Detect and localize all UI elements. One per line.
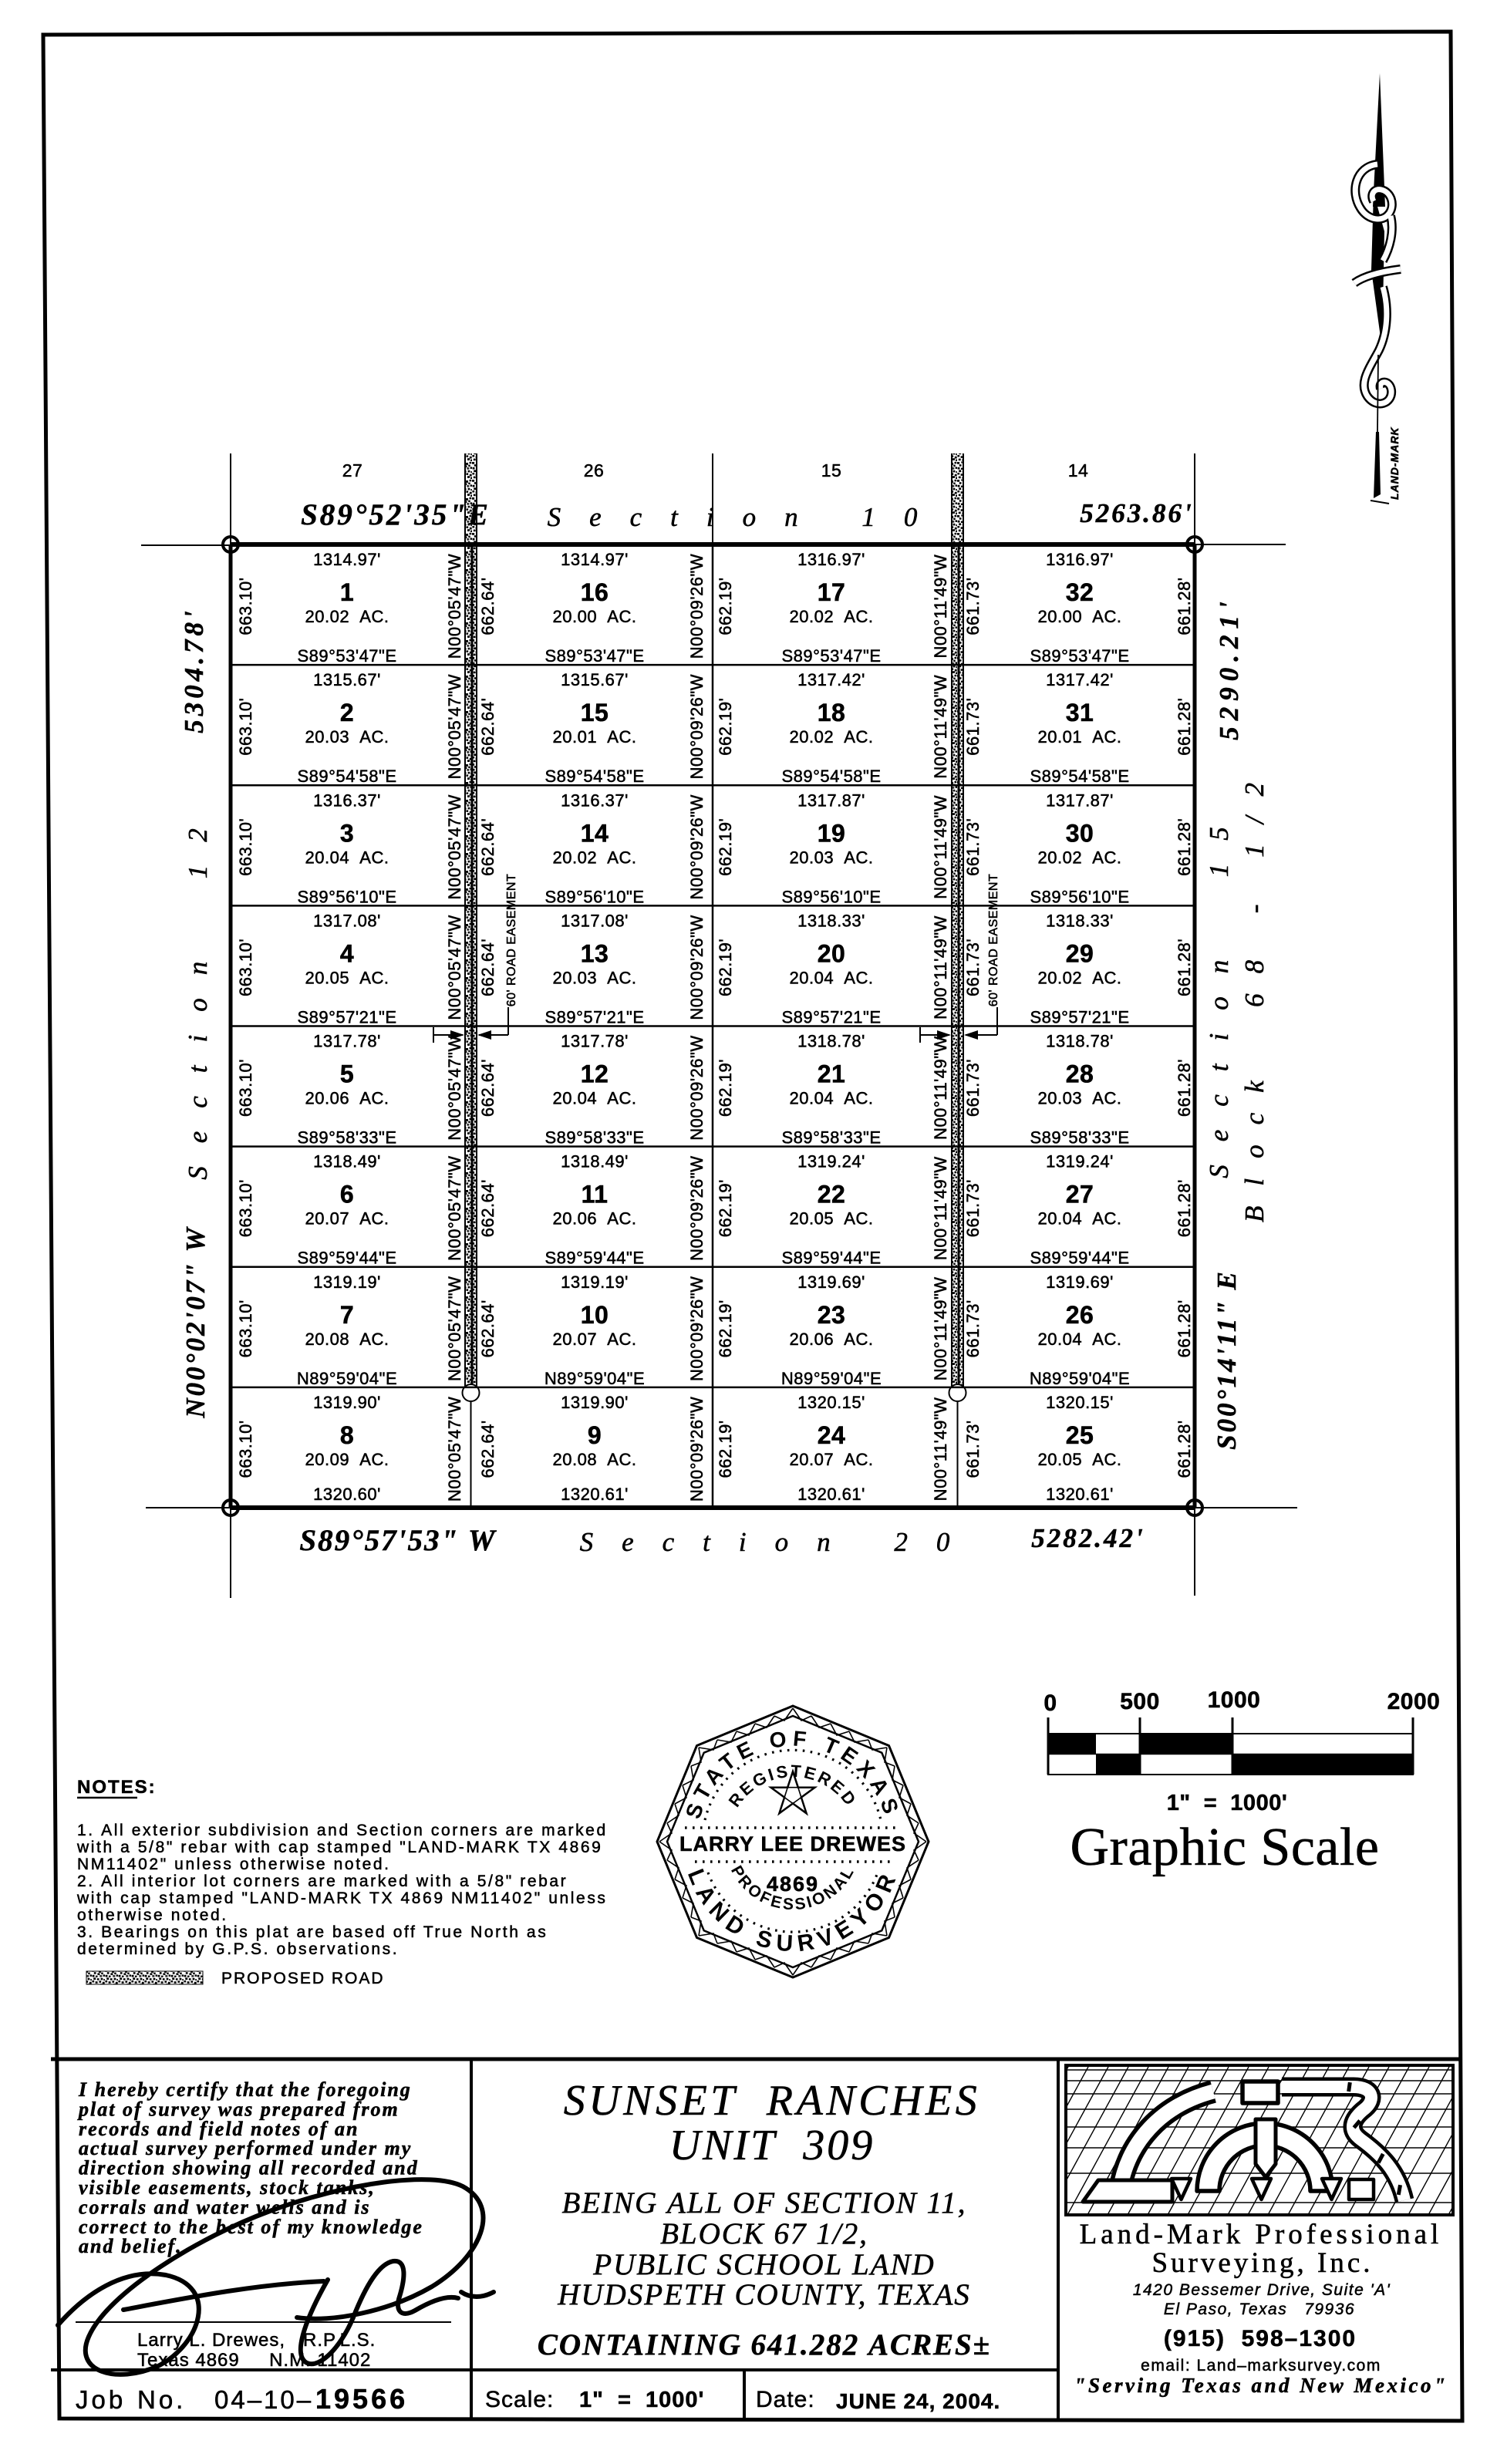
svg-text:9: 9 — [588, 1421, 602, 1449]
svg-text:1000: 1000 — [1208, 1687, 1261, 1713]
svg-text:N00°11'49"W: N00°11'49"W — [931, 1276, 950, 1380]
svg-text:26: 26 — [1066, 1301, 1094, 1329]
svg-text:661.73': 661.73' — [963, 698, 983, 756]
svg-text:19566: 19566 — [315, 2383, 408, 2415]
svg-text:20.02 AC.: 20.02 AC. — [553, 848, 637, 867]
svg-text:32: 32 — [1066, 578, 1094, 606]
svg-text:20.03 AC.: 20.03 AC. — [1038, 1089, 1122, 1108]
svg-text:20.02 AC.: 20.02 AC. — [1038, 848, 1122, 867]
svg-text:661.28': 661.28' — [1175, 1299, 1194, 1357]
svg-text:SUNSET RANCHES: SUNSET RANCHES — [564, 2077, 980, 2125]
svg-text:1320.61': 1320.61' — [1046, 1485, 1114, 1504]
svg-text:N00°11'49"W: N00°11'49"W — [931, 675, 950, 779]
svg-text:S89°57'21"E: S89°57'21"E — [1030, 1007, 1129, 1026]
svg-text:N00°05'47"W: N00°05'47"W — [445, 1035, 464, 1140]
svg-text:2: 2 — [340, 699, 354, 726]
svg-text:20.00 AC.: 20.00 AC. — [1038, 607, 1122, 626]
svg-text:662.64': 662.64' — [478, 1179, 497, 1237]
svg-text:15: 15 — [581, 699, 609, 726]
svg-text:1320.15': 1320.15' — [1046, 1393, 1114, 1412]
svg-text:663.10': 663.10' — [236, 1299, 255, 1357]
svg-text:20.01 AC.: 20.01 AC. — [553, 727, 637, 747]
svg-text:661.73': 661.73' — [963, 578, 983, 635]
svg-text:20: 20 — [818, 939, 846, 967]
svg-text:20.05 AC.: 20.05 AC. — [790, 1209, 874, 1229]
svg-text:1319.90': 1319.90' — [561, 1393, 629, 1412]
svg-text:S89°56'10"E: S89°56'10"E — [781, 887, 881, 906]
svg-text:662.64': 662.64' — [478, 1420, 497, 1478]
svg-text:NOTES:: NOTES: — [77, 1777, 157, 1798]
svg-text:662.19': 662.19' — [716, 1059, 735, 1117]
svg-text:S89°58'33"E: S89°58'33"E — [545, 1128, 644, 1148]
svg-text:662.19': 662.19' — [716, 698, 735, 756]
svg-text:Job: Job — [76, 2385, 126, 2414]
svg-text:20.00 AC.: 20.00 AC. — [553, 607, 637, 626]
svg-text:S89°57'21"E: S89°57'21"E — [545, 1007, 644, 1026]
svg-text:1319.69': 1319.69' — [797, 1272, 865, 1292]
svg-text:20.06 AC.: 20.06 AC. — [790, 1330, 874, 1349]
svg-text:1317.78': 1317.78' — [313, 1032, 381, 1051]
svg-text:663.10': 663.10' — [236, 1420, 255, 1478]
svg-text:with cap stamped "LAND-MARK TX: with cap stamped "LAND-MARK TX 4869 NM11… — [76, 1889, 608, 1907]
svg-text:determined by G.P.S. observati: determined by G.P.S. observations. — [77, 1940, 399, 1958]
svg-text:22: 22 — [818, 1181, 846, 1208]
svg-text:662.64': 662.64' — [478, 818, 497, 876]
svg-text:1" = 1000': 1" = 1000' — [579, 2388, 704, 2412]
svg-text:Section 15: Section 15 — [1204, 804, 1234, 1178]
svg-text:HUDSPETH COUNTY, TEXAS: HUDSPETH COUNTY, TEXAS — [557, 2278, 971, 2311]
svg-text:1318.78': 1318.78' — [797, 1032, 865, 1051]
svg-text:S89°53'47"E: S89°53'47"E — [781, 646, 881, 666]
svg-text:20.03 AC.: 20.03 AC. — [553, 968, 637, 987]
svg-text:N00°05'47"W: N00°05'47"W — [445, 674, 464, 779]
svg-text:S89°59'44"E: S89°59'44"E — [545, 1249, 644, 1268]
svg-text:1319.90': 1319.90' — [313, 1393, 381, 1412]
svg-text:Section 12: Section 12 — [183, 805, 213, 1180]
svg-text:1317.08': 1317.08' — [561, 911, 629, 930]
svg-text:661.73': 661.73' — [963, 1059, 983, 1117]
svg-text:12: 12 — [581, 1060, 609, 1088]
svg-text:1317.42': 1317.42' — [1046, 670, 1114, 689]
svg-text:20.04 AC.: 20.04 AC. — [305, 848, 389, 867]
svg-text:17: 17 — [818, 578, 846, 606]
svg-text:Graphic Scale: Graphic Scale — [1070, 1818, 1379, 1877]
svg-text:500: 500 — [1120, 1689, 1160, 1714]
svg-text:N00°09'26"W: N00°09'26"W — [687, 915, 706, 1020]
svg-text:661.28': 661.28' — [1175, 698, 1194, 756]
svg-text:Texas 4869 N.M. 11402: Texas 4869 N.M. 11402 — [137, 2350, 371, 2371]
svg-text:4869: 4869 — [767, 1872, 819, 1896]
svg-text:8: 8 — [340, 1421, 354, 1449]
svg-text:N00°09'26"W: N00°09'26"W — [687, 1397, 706, 1502]
svg-text:661.28': 661.28' — [1175, 1179, 1194, 1237]
svg-text:663.10': 663.10' — [236, 1059, 255, 1117]
svg-text:1319.19': 1319.19' — [313, 1272, 381, 1292]
svg-text:S89°53'47"E: S89°53'47"E — [297, 646, 396, 666]
svg-text:20.05 AC.: 20.05 AC. — [305, 968, 389, 987]
svg-text:Section 20: Section 20 — [580, 1527, 979, 1557]
svg-text:Section 10: Section 10 — [548, 502, 946, 532]
svg-text:663.10': 663.10' — [236, 818, 255, 876]
svg-text:S00°14'11" E: S00°14'11" E — [1212, 1269, 1242, 1450]
svg-text:BEING ALL OF SECTION 11,: BEING ALL OF SECTION 11, — [561, 2186, 966, 2220]
svg-text:1314.97': 1314.97' — [561, 550, 629, 569]
svg-text:661.28': 661.28' — [1175, 1420, 1194, 1478]
svg-text:JUNE 24, 2004.: JUNE 24, 2004. — [836, 2389, 1000, 2413]
svg-text:10: 10 — [581, 1301, 609, 1329]
svg-text:UNIT 309: UNIT 309 — [669, 2122, 875, 2169]
svg-text:N00°05'47"W: N00°05'47"W — [445, 554, 464, 659]
svg-text:CONTAINING 641.282 ACRES±: CONTAINING 641.282 ACRES± — [538, 2328, 991, 2361]
svg-text:14: 14 — [1068, 460, 1089, 480]
svg-text:1316.37': 1316.37' — [313, 790, 381, 810]
svg-text:BLOCK 67 1/2,: BLOCK 67 1/2, — [660, 2217, 868, 2250]
svg-text:20.02 AC.: 20.02 AC. — [1038, 968, 1122, 987]
svg-text:Surveying, Inc.: Surveying, Inc. — [1151, 2247, 1373, 2279]
svg-text:662.19': 662.19' — [716, 939, 735, 996]
svg-text:1315.67': 1315.67' — [561, 670, 629, 689]
svg-text:26: 26 — [584, 460, 605, 480]
svg-text:28: 28 — [1066, 1060, 1094, 1088]
svg-text:1316.97': 1316.97' — [797, 550, 865, 569]
svg-text:5290.21': 5290.21' — [1214, 595, 1244, 740]
svg-text:24: 24 — [818, 1421, 846, 1449]
svg-text:1318.49': 1318.49' — [313, 1152, 381, 1171]
svg-text:1317.42': 1317.42' — [797, 670, 865, 689]
svg-text:N00°09'26"W: N00°09'26"W — [687, 1156, 706, 1261]
svg-text:1318.33': 1318.33' — [797, 911, 865, 930]
svg-text:20.08 AC.: 20.08 AC. — [553, 1450, 637, 1469]
svg-text:04–10–: 04–10– — [214, 2385, 313, 2414]
svg-text:20.04 AC.: 20.04 AC. — [553, 1089, 637, 1108]
svg-text:S89°56'10"E: S89°56'10"E — [297, 887, 396, 906]
svg-text:No.: No. — [137, 2385, 186, 2414]
svg-text:5304.78': 5304.78' — [179, 607, 209, 733]
svg-text:S89°54'58"E: S89°54'58"E — [297, 767, 396, 786]
svg-text:N00°09'26"W: N00°09'26"W — [687, 794, 706, 899]
svg-text:20.03 AC.: 20.03 AC. — [305, 727, 389, 747]
svg-text:31: 31 — [1066, 699, 1094, 726]
svg-text:N00°05'47"W: N00°05'47"W — [445, 1276, 464, 1381]
svg-text:email: Land–marksurvey.com: email: Land–marksurvey.com — [1141, 2357, 1381, 2375]
svg-text:N00°11'49"W: N00°11'49"W — [931, 1036, 950, 1140]
svg-text:7: 7 — [340, 1301, 354, 1329]
svg-text:N00°09'26"W: N00°09'26"W — [687, 674, 706, 779]
svg-text:20.04 AC.: 20.04 AC. — [790, 1089, 874, 1108]
svg-text:662.64': 662.64' — [478, 698, 497, 756]
svg-text:NM11402" unless otherwise note: NM11402" unless otherwise noted. — [77, 1856, 391, 1873]
svg-text:662.19': 662.19' — [716, 1299, 735, 1357]
svg-text:1320.15': 1320.15' — [797, 1393, 865, 1412]
svg-text:N00°11'49"W: N00°11'49"W — [931, 1156, 950, 1260]
svg-text:662.19': 662.19' — [716, 1420, 735, 1478]
svg-text:S89°53'47"E: S89°53'47"E — [545, 646, 644, 666]
svg-text:19: 19 — [818, 819, 846, 847]
svg-text:4: 4 — [340, 939, 354, 967]
svg-text:5: 5 — [340, 1060, 354, 1088]
svg-text:S89°59'44"E: S89°59'44"E — [781, 1249, 881, 1268]
svg-text:N89°59'04"E: N89°59'04"E — [781, 1369, 882, 1388]
svg-text:663.10': 663.10' — [236, 1179, 255, 1237]
svg-text:N89°59'04"E: N89°59'04"E — [545, 1369, 645, 1388]
svg-text:S89°54'58"E: S89°54'58"E — [781, 767, 881, 786]
svg-text:S89°57'21"E: S89°57'21"E — [297, 1007, 396, 1026]
svg-text:6: 6 — [340, 1181, 354, 1208]
svg-text:662.64': 662.64' — [478, 1299, 497, 1357]
svg-text:"Serving Texas and New Mexico": "Serving Texas and New Mexico" — [1074, 2374, 1448, 2397]
svg-text:1319.19': 1319.19' — [561, 1272, 629, 1292]
svg-text:661.73': 661.73' — [963, 1420, 983, 1478]
svg-text:PROPOSED ROAD: PROPOSED ROAD — [221, 1970, 385, 1987]
svg-text:N00°11'49"W: N00°11'49"W — [931, 554, 950, 659]
svg-text:N00°11'49"W: N00°11'49"W — [931, 915, 950, 1020]
svg-text:30: 30 — [1066, 819, 1094, 847]
svg-text:N00°11'49"W: N00°11'49"W — [931, 795, 950, 899]
svg-text:18: 18 — [818, 699, 846, 726]
svg-text:1318.33': 1318.33' — [1046, 911, 1114, 930]
svg-text:and belief.: and belief. — [79, 2235, 183, 2257]
svg-text:20.02 AC.: 20.02 AC. — [305, 607, 389, 626]
svg-text:1316.97': 1316.97' — [1046, 550, 1114, 569]
svg-text:661.73': 661.73' — [963, 1299, 983, 1357]
svg-text:S89°58'33"E: S89°58'33"E — [781, 1128, 881, 1148]
svg-text:662.64': 662.64' — [478, 1059, 497, 1117]
svg-text:1317.08': 1317.08' — [313, 911, 381, 930]
svg-text:N00°09'26"W: N00°09'26"W — [687, 554, 706, 659]
svg-text:3. Bearings on this plat are b: 3. Bearings on this plat are based off T… — [77, 1923, 548, 1941]
svg-text:21: 21 — [818, 1060, 846, 1088]
svg-text:663.10': 663.10' — [236, 578, 255, 635]
svg-text:13: 13 — [581, 939, 609, 967]
svg-text:1320.60': 1320.60' — [313, 1485, 381, 1504]
svg-text:S89°56'10"E: S89°56'10"E — [545, 887, 644, 906]
svg-text:S89°57'21"E: S89°57'21"E — [781, 1007, 881, 1026]
svg-text:661.73': 661.73' — [963, 939, 983, 996]
svg-text:3: 3 — [340, 819, 354, 847]
svg-text:20.04 AC.: 20.04 AC. — [790, 968, 874, 987]
svg-text:1: 1 — [340, 578, 354, 606]
svg-text:1. All exterior subdivision an: 1. All exterior subdivision and Section … — [77, 1822, 608, 1839]
svg-text:1318.78': 1318.78' — [1046, 1032, 1114, 1051]
svg-text:1317.78': 1317.78' — [561, 1032, 629, 1051]
svg-text:1317.87': 1317.87' — [797, 790, 865, 810]
svg-text:1319.24': 1319.24' — [1046, 1152, 1114, 1171]
svg-text:1319.69': 1319.69' — [1046, 1272, 1114, 1292]
svg-text:Land-Mark Professional: Land-Mark Professional — [1080, 2219, 1443, 2250]
svg-text:S89°53'47"E: S89°53'47"E — [1030, 646, 1129, 666]
svg-text:N89°59'04"E: N89°59'04"E — [1030, 1369, 1130, 1388]
svg-text:15: 15 — [821, 460, 842, 480]
svg-text:S89°59'44"E: S89°59'44"E — [297, 1249, 396, 1268]
svg-text:1318.49': 1318.49' — [561, 1152, 629, 1171]
svg-text:663.10': 663.10' — [236, 939, 255, 996]
svg-text:Larry L. Drewes, R.P.L.S.: Larry L. Drewes, R.P.L.S. — [137, 2330, 376, 2351]
svg-text:Scale:: Scale: — [485, 2387, 554, 2412]
svg-text:N00°11'49"W: N00°11'49"W — [931, 1397, 950, 1502]
svg-text:1315.67': 1315.67' — [313, 670, 381, 689]
svg-text:N00°09'26"W: N00°09'26"W — [687, 1035, 706, 1140]
svg-text:20.06 AC.: 20.06 AC. — [553, 1209, 637, 1229]
svg-text:1" = 1000': 1" = 1000' — [1167, 1791, 1287, 1815]
svg-text:661.28': 661.28' — [1175, 1059, 1194, 1117]
svg-text:661.28': 661.28' — [1175, 939, 1194, 996]
svg-text:1319.24': 1319.24' — [797, 1152, 865, 1171]
svg-text:662.19': 662.19' — [716, 578, 735, 635]
svg-text:N89°59'04"E: N89°59'04"E — [297, 1369, 397, 1388]
svg-text:20.04 AC.: 20.04 AC. — [1038, 1209, 1122, 1229]
svg-text:N00°05'47"W: N00°05'47"W — [445, 915, 464, 1020]
svg-text:11: 11 — [582, 1181, 609, 1208]
svg-text:LARRY LEE DREWES: LARRY LEE DREWES — [679, 1832, 906, 1856]
svg-text:S89°54'58"E: S89°54'58"E — [545, 767, 644, 786]
svg-text:20.02 AC.: 20.02 AC. — [790, 727, 874, 747]
svg-text:2. All interior lot corners ar: 2. All interior lot corners are marked w… — [77, 1872, 568, 1890]
svg-text:20.04 AC.: 20.04 AC. — [1038, 1330, 1122, 1349]
svg-text:14: 14 — [581, 819, 609, 847]
svg-text:Date:: Date: — [756, 2387, 815, 2412]
svg-text:20.09 AC.: 20.09 AC. — [305, 1450, 389, 1469]
svg-text:El Paso, Texas 79936: El Paso, Texas 79936 — [1164, 2301, 1355, 2318]
svg-text:N00°02'07" W: N00°02'07" W — [180, 1225, 211, 1418]
svg-text:S89°57'53" W: S89°57'53" W — [299, 1524, 497, 1557]
svg-text:S89°58'33"E: S89°58'33"E — [1030, 1128, 1129, 1148]
svg-text:S89°59'44"E: S89°59'44"E — [1030, 1249, 1129, 1268]
svg-text:20.07 AC.: 20.07 AC. — [790, 1450, 874, 1469]
svg-text:Block 68 - 1/2: Block 68 - 1/2 — [1239, 763, 1269, 1222]
svg-text:662.64': 662.64' — [478, 939, 497, 996]
svg-text:661.28': 661.28' — [1175, 578, 1194, 635]
svg-text:2000: 2000 — [1387, 1689, 1441, 1714]
svg-text:662.19': 662.19' — [716, 818, 735, 876]
svg-text:1314.97': 1314.97' — [313, 550, 381, 569]
svg-text:PUBLIC SCHOOL LAND: PUBLIC SCHOOL LAND — [592, 2248, 935, 2281]
svg-text:N00°09'26"W: N00°09'26"W — [687, 1276, 706, 1381]
svg-text:20.06 AC.: 20.06 AC. — [305, 1089, 389, 1108]
svg-text:(915) 598–1300: (915) 598–1300 — [1164, 2326, 1357, 2351]
svg-text:20.01 AC.: 20.01 AC. — [1038, 727, 1122, 747]
svg-text:29: 29 — [1066, 939, 1094, 967]
svg-text:20.03 AC.: 20.03 AC. — [790, 848, 874, 867]
svg-text:1317.87': 1317.87' — [1046, 790, 1114, 810]
svg-text:20.07 AC.: 20.07 AC. — [305, 1209, 389, 1229]
svg-text:661.28': 661.28' — [1175, 818, 1194, 876]
svg-text:N00°05'47"W: N00°05'47"W — [445, 794, 464, 899]
svg-text:27: 27 — [1066, 1181, 1094, 1208]
svg-text:661.73': 661.73' — [963, 818, 983, 876]
svg-text:5282.42': 5282.42' — [1031, 1523, 1145, 1553]
svg-text:S89°54'58"E: S89°54'58"E — [1030, 767, 1129, 786]
svg-text:1320.61': 1320.61' — [561, 1485, 629, 1504]
svg-text:0: 0 — [1044, 1690, 1057, 1716]
svg-text:S89°56'10"E: S89°56'10"E — [1030, 887, 1129, 906]
svg-text:662.19': 662.19' — [716, 1179, 735, 1237]
svg-text:N00°05'47"W: N00°05'47"W — [445, 1156, 464, 1261]
svg-text:1316.37': 1316.37' — [561, 790, 629, 810]
svg-text:661.73': 661.73' — [963, 1179, 983, 1237]
svg-text:60' ROAD EASEMENT: 60' ROAD EASEMENT — [987, 874, 1000, 1006]
svg-text:663.10': 663.10' — [236, 698, 255, 756]
svg-text:16: 16 — [581, 578, 609, 606]
svg-text:1320.61': 1320.61' — [797, 1485, 865, 1504]
svg-text:662.64': 662.64' — [478, 578, 497, 635]
svg-text:1420 Bessemer Drive, Suite 'A': 1420 Bessemer Drive, Suite 'A' — [1133, 2281, 1391, 2299]
svg-text:20.05 AC.: 20.05 AC. — [1038, 1450, 1122, 1469]
svg-text:5263.86': 5263.86' — [1080, 498, 1193, 528]
svg-text:23: 23 — [818, 1301, 846, 1329]
svg-text:S89°52'35"E: S89°52'35"E — [301, 498, 491, 531]
svg-text:25: 25 — [1066, 1421, 1094, 1449]
svg-text:S89°58'33"E: S89°58'33"E — [297, 1128, 396, 1148]
svg-text:27: 27 — [342, 460, 363, 480]
svg-text:20.07 AC.: 20.07 AC. — [553, 1330, 637, 1349]
svg-text:LAND-MARK: LAND-MARK — [1388, 426, 1401, 500]
svg-text:20.02 AC.: 20.02 AC. — [790, 607, 874, 626]
svg-text:N00°05'47"W: N00°05'47"W — [445, 1397, 464, 1502]
svg-text:otherwise noted.: otherwise noted. — [77, 1906, 228, 1924]
svg-text:with a 5/8" rebar with cap sta: with a 5/8" rebar with cap stamped "LAND… — [76, 1839, 602, 1856]
svg-text:20.08 AC.: 20.08 AC. — [305, 1330, 389, 1349]
svg-text:60' ROAD EASEMENT: 60' ROAD EASEMENT — [505, 874, 518, 1006]
